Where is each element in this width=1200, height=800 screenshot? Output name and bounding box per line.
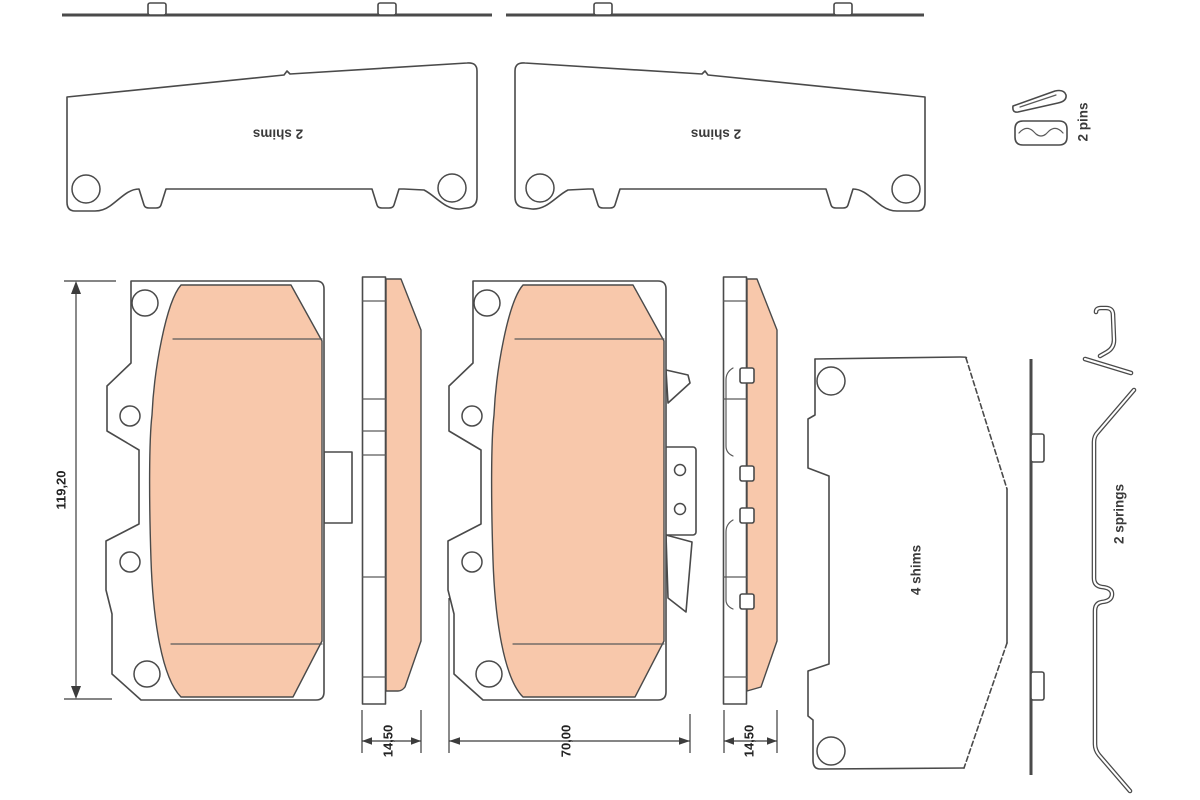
dimension-thickness-left: 14,50 [362,710,421,757]
wear-indicator-tab-top [666,370,690,403]
shim-front-left: 2 shims [67,63,477,211]
shim-inner-front: 4 shims [808,357,1007,769]
dimension-pad-height: 119,20 [53,281,116,699]
thickness-right-value: 14,50 [741,725,756,758]
clip-tab [740,508,754,523]
pins-group: 2 pins [1013,91,1091,146]
springs-group: 2 springs [1085,308,1134,791]
shim-tab [1031,672,1044,700]
pin-icon [1015,121,1067,145]
shim-edge-views-top [62,3,924,15]
shims-inner-label: 4 shims [909,545,924,595]
clip-tab [740,594,754,609]
shim-tab [378,3,396,15]
pad-width-value: 70,00 [558,725,573,758]
pins-label: 2 pins [1076,102,1091,141]
shim-tab [148,3,166,15]
pad-guide-tab [324,452,352,523]
drawing-page: 2 shims 2 shims 2 pins 119,20 [0,0,1200,800]
springs-label: 2 springs [1112,484,1127,544]
pad-front-right [448,281,696,700]
shim-left-label: 2 shims [253,126,303,141]
pad-side-left [363,277,422,704]
shim-inner-edge-view [1031,359,1044,775]
pad-front-left [106,281,352,700]
clip-tab [740,466,754,481]
wear-indicator-tab-bottom [666,535,692,612]
dimension-thickness-right: 14,50 [724,710,777,757]
shim-tab [834,3,852,15]
shim-front-right: 2 shims [515,63,925,211]
shim-tab [594,3,612,15]
brake-pad-technical-drawing: 2 shims 2 shims 2 pins 119,20 [0,0,1200,800]
pin-icon [1013,91,1066,113]
pad-height-value: 119,20 [53,470,68,509]
wear-indicator-bracket [664,447,696,535]
shim-right-label: 2 shims [691,126,741,141]
clip-tab [740,368,754,383]
pad-side-right [724,277,778,704]
thickness-left-value: 14,50 [380,725,395,758]
shim-tab [1031,434,1044,462]
